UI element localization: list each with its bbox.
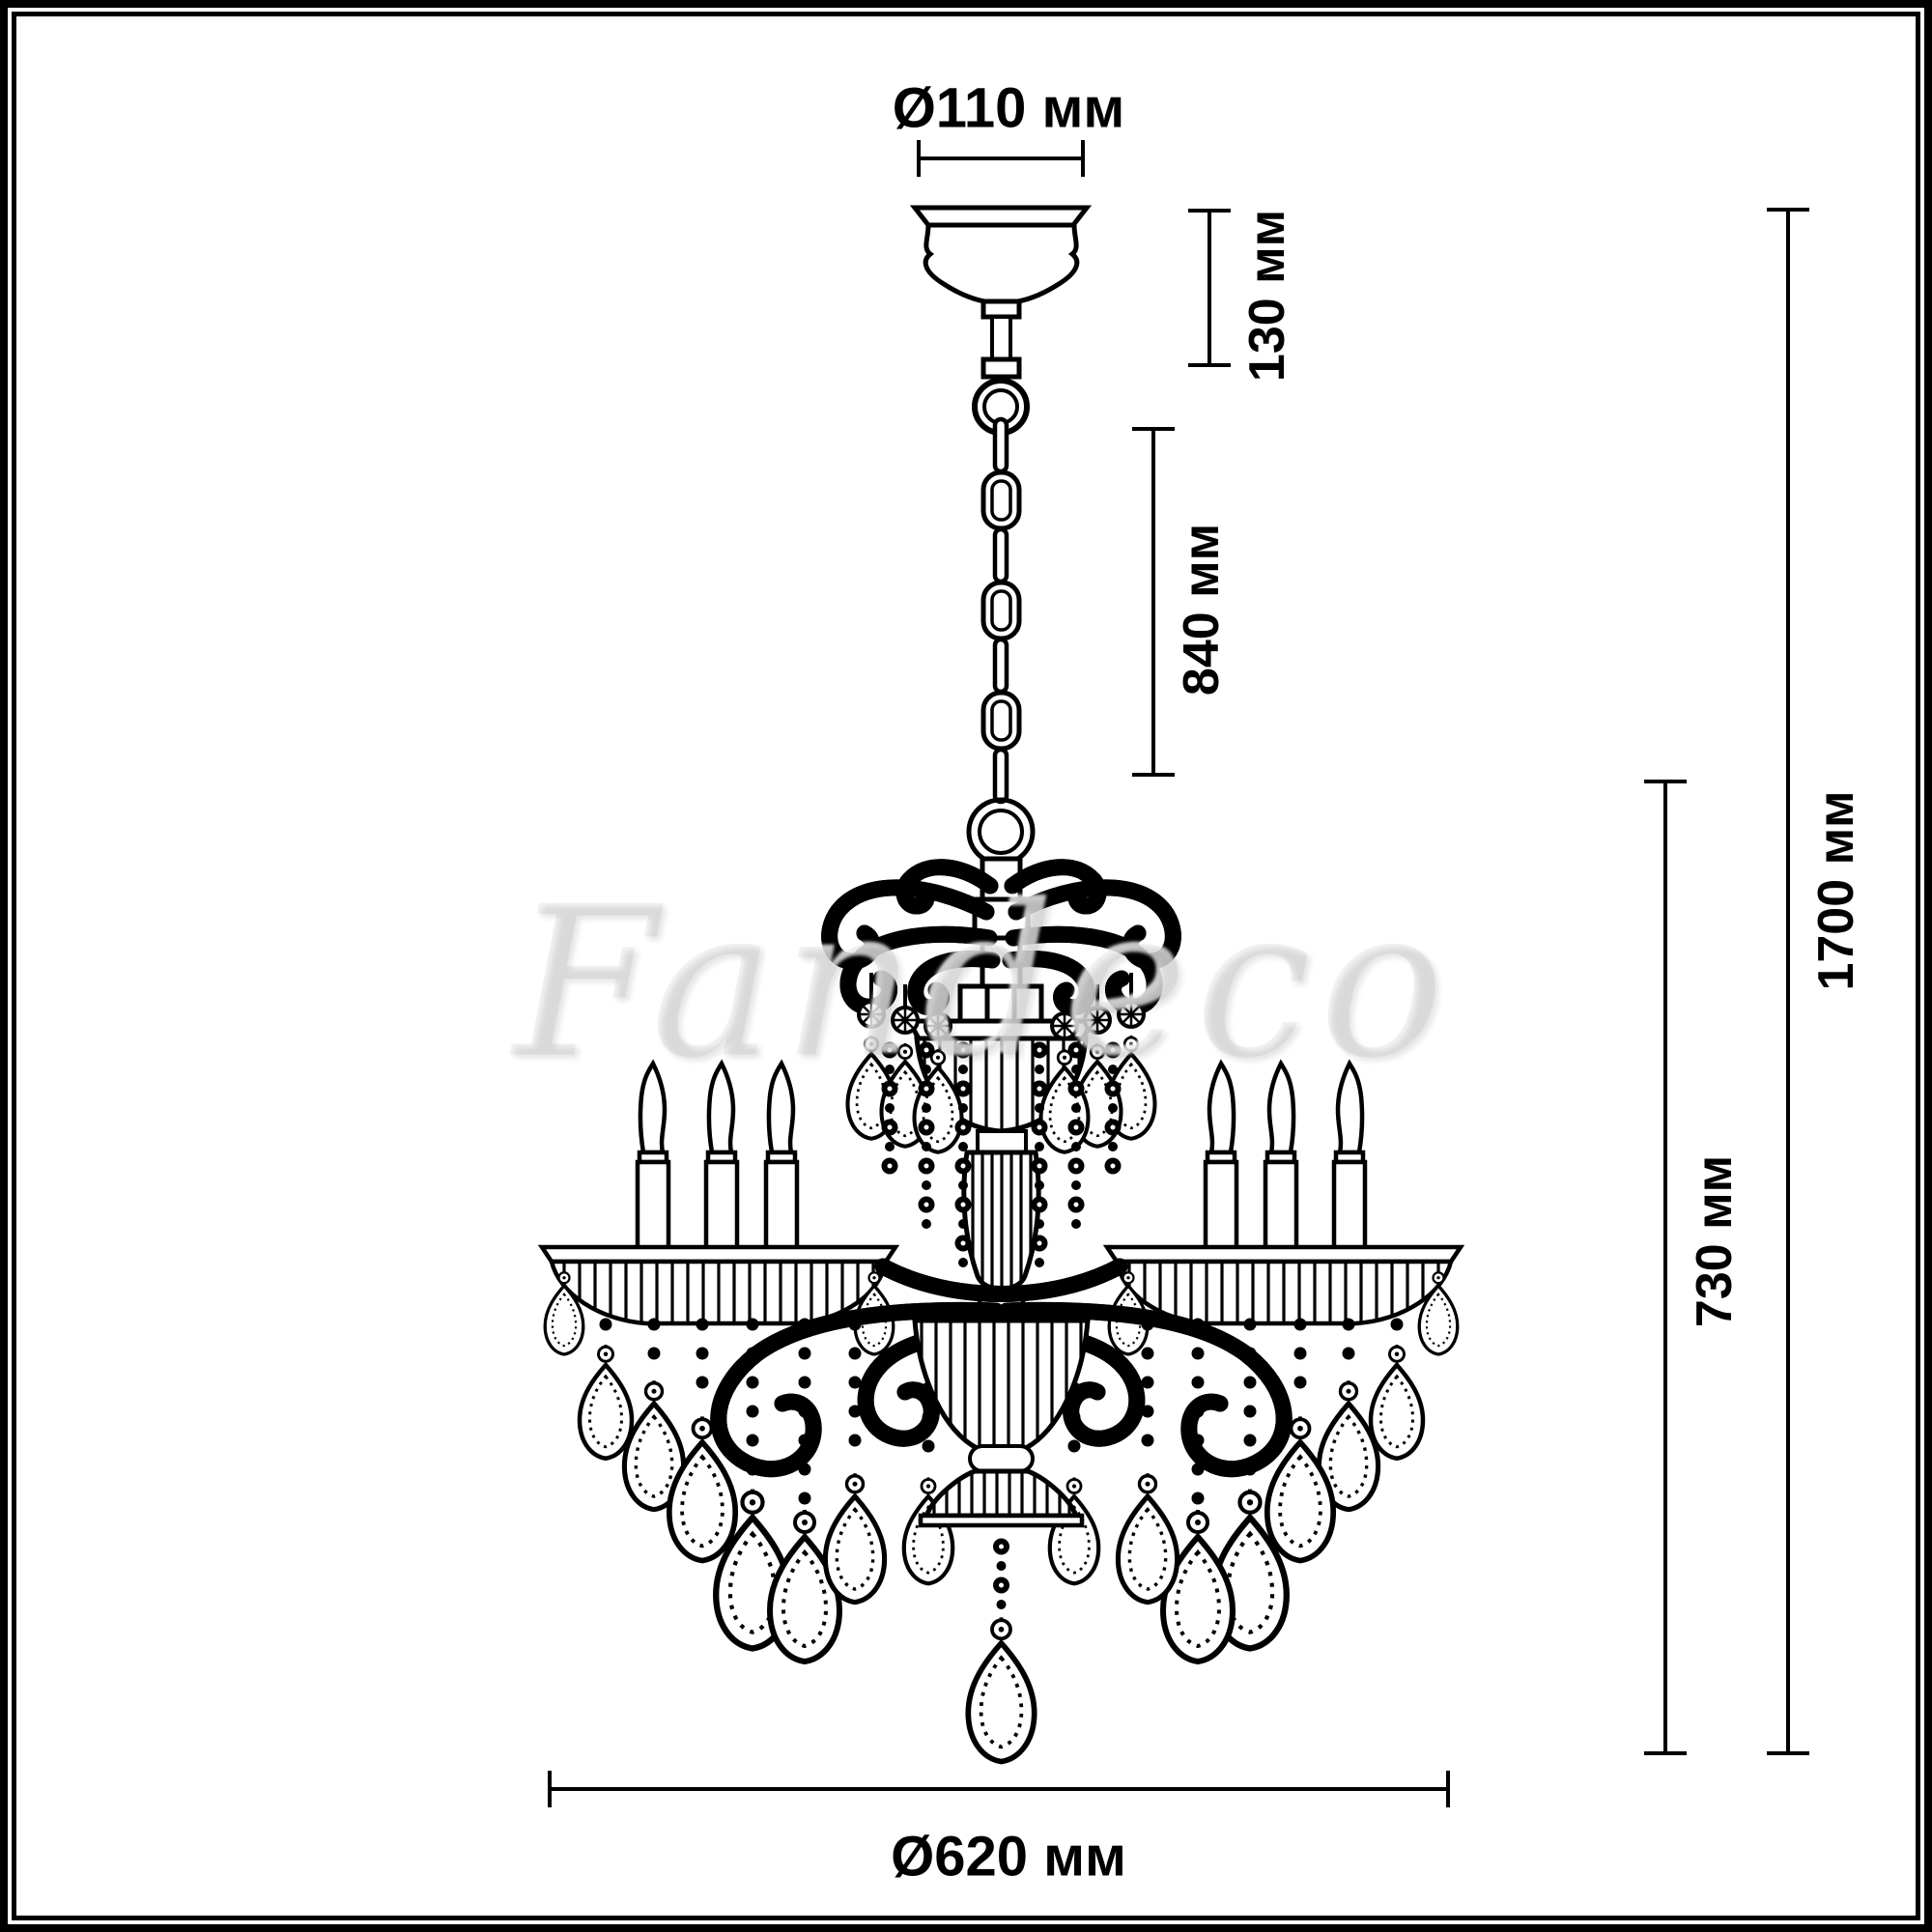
dim-label-canopy-diameter: Ø110 мм xyxy=(893,76,1125,141)
left-arm-assembly xyxy=(542,867,1001,1662)
dim-label-canopy-height: 130 мм xyxy=(1238,210,1296,382)
chandelier-diagram-drawing xyxy=(16,16,1920,1920)
dim-label-body-height: 730 мм xyxy=(1686,1155,1744,1327)
bottom-finial xyxy=(968,1547,1034,1762)
right-arm-assembly xyxy=(1002,867,1461,1662)
diagram-frame: Fandeco xyxy=(12,12,1920,1920)
dim-label-body-diameter: Ø620 мм xyxy=(891,1825,1126,1889)
diagram-page: Fandeco xyxy=(0,0,1932,1932)
lower-bowl xyxy=(915,1321,1088,1525)
dim-label-total-height: 1700 мм xyxy=(1807,790,1865,990)
dim-label-chain-length: 840 мм xyxy=(1173,524,1231,696)
suspension-chain xyxy=(969,419,1033,938)
canopy xyxy=(915,208,1087,377)
